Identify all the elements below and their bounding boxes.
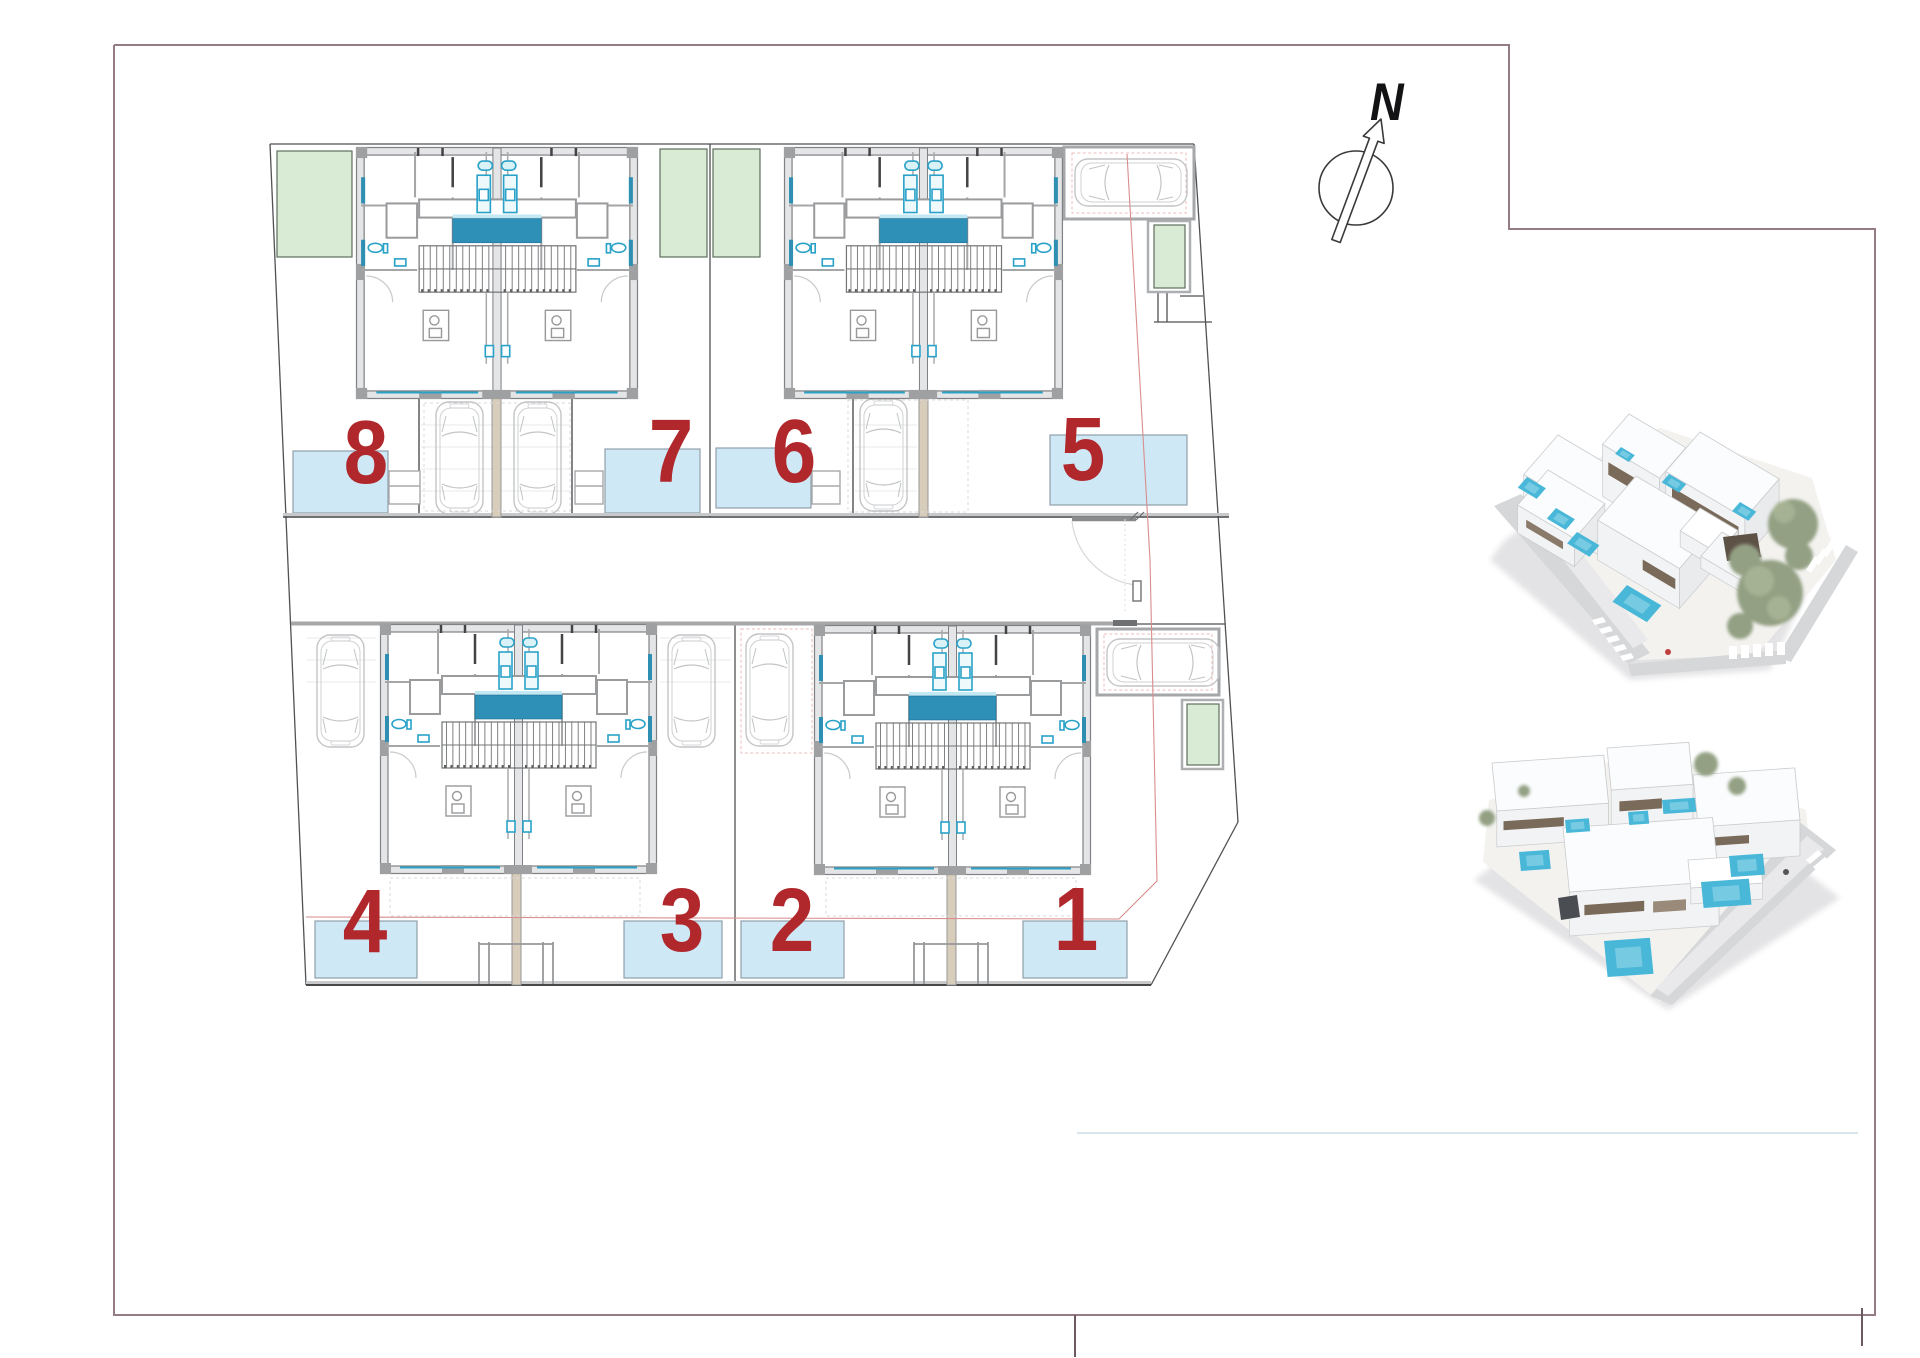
svg-text:N: N	[1370, 72, 1405, 131]
svg-text:4: 4	[343, 872, 388, 972]
svg-text:5: 5	[1061, 400, 1106, 500]
svg-text:3: 3	[660, 871, 705, 971]
svg-text:2: 2	[770, 871, 815, 971]
svg-text:1: 1	[1054, 870, 1099, 970]
svg-text:6: 6	[772, 402, 817, 502]
svg-text:7: 7	[649, 402, 694, 502]
svg-text:8: 8	[344, 403, 389, 503]
